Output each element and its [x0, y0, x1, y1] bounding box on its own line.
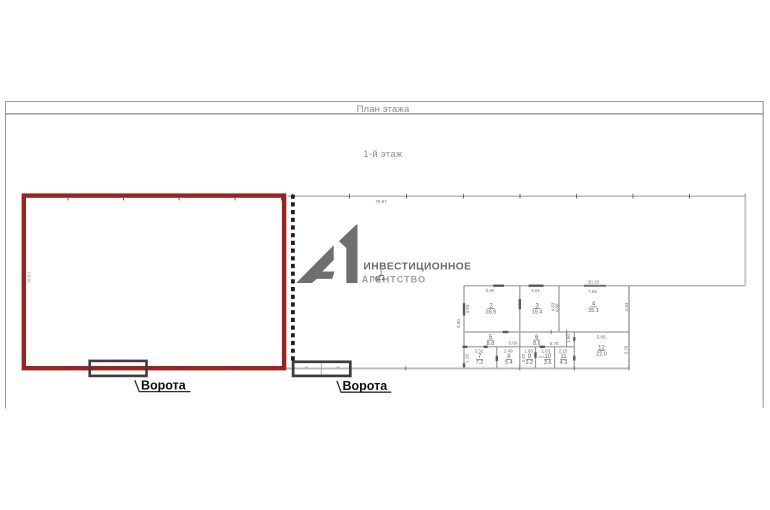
svg-text:1-й этаж: 1-й этаж — [364, 149, 403, 159]
svg-text:8.8: 8.8 — [487, 341, 495, 347]
svg-text:3.76: 3.76 — [623, 345, 628, 354]
svg-text:18.53: 18.53 — [26, 272, 31, 284]
svg-text:1.63: 1.63 — [542, 348, 551, 353]
svg-text:4.01: 4.01 — [531, 288, 540, 293]
svg-text:4.63: 4.63 — [624, 302, 629, 311]
svg-text:5.4: 5.4 — [505, 360, 513, 366]
svg-text:5.69: 5.69 — [509, 341, 518, 346]
svg-text:5.90: 5.90 — [486, 288, 495, 293]
svg-text:АГЕНТСТВО: АГЕНТСТВО — [362, 275, 426, 285]
svg-text:769.4: 769.4 — [372, 277, 385, 283]
svg-text:35.1: 35.1 — [588, 308, 599, 314]
svg-text:1.18: 1.18 — [465, 354, 470, 363]
svg-text:4.3: 4.3 — [560, 360, 568, 366]
svg-text:30.20: 30.20 — [588, 280, 600, 285]
svg-text:Ворота: Ворота — [141, 378, 187, 392]
svg-text:1.50: 1.50 — [566, 334, 571, 343]
svg-text:2.49: 2.49 — [504, 348, 513, 353]
svg-text:2.15: 2.15 — [559, 348, 568, 353]
svg-text:7.2: 7.2 — [476, 360, 484, 366]
svg-text:22.0: 22.0 — [596, 352, 607, 358]
svg-text:3.32: 3.32 — [475, 348, 484, 353]
svg-text:76.97: 76.97 — [375, 199, 387, 204]
svg-text:28.6: 28.6 — [486, 310, 497, 316]
svg-text:4.84: 4.84 — [465, 304, 470, 313]
svg-text:3.6: 3.6 — [544, 360, 552, 366]
svg-text:3.2: 3.2 — [525, 360, 533, 366]
svg-text:План этажа: План этажа — [357, 104, 410, 115]
svg-text:8.6: 8.6 — [533, 341, 541, 347]
svg-text:19.4: 19.4 — [532, 310, 543, 316]
svg-text:Ворота: Ворота — [343, 379, 389, 393]
svg-text:7.59: 7.59 — [588, 289, 597, 294]
svg-text:4.63: 4.63 — [551, 302, 556, 311]
svg-text:1.60: 1.60 — [524, 348, 533, 353]
svg-text:5.76: 5.76 — [550, 341, 559, 346]
svg-text:8.80: 8.80 — [456, 319, 461, 328]
svg-text:5.85: 5.85 — [597, 335, 606, 340]
svg-text:2.02: 2.02 — [521, 353, 526, 362]
